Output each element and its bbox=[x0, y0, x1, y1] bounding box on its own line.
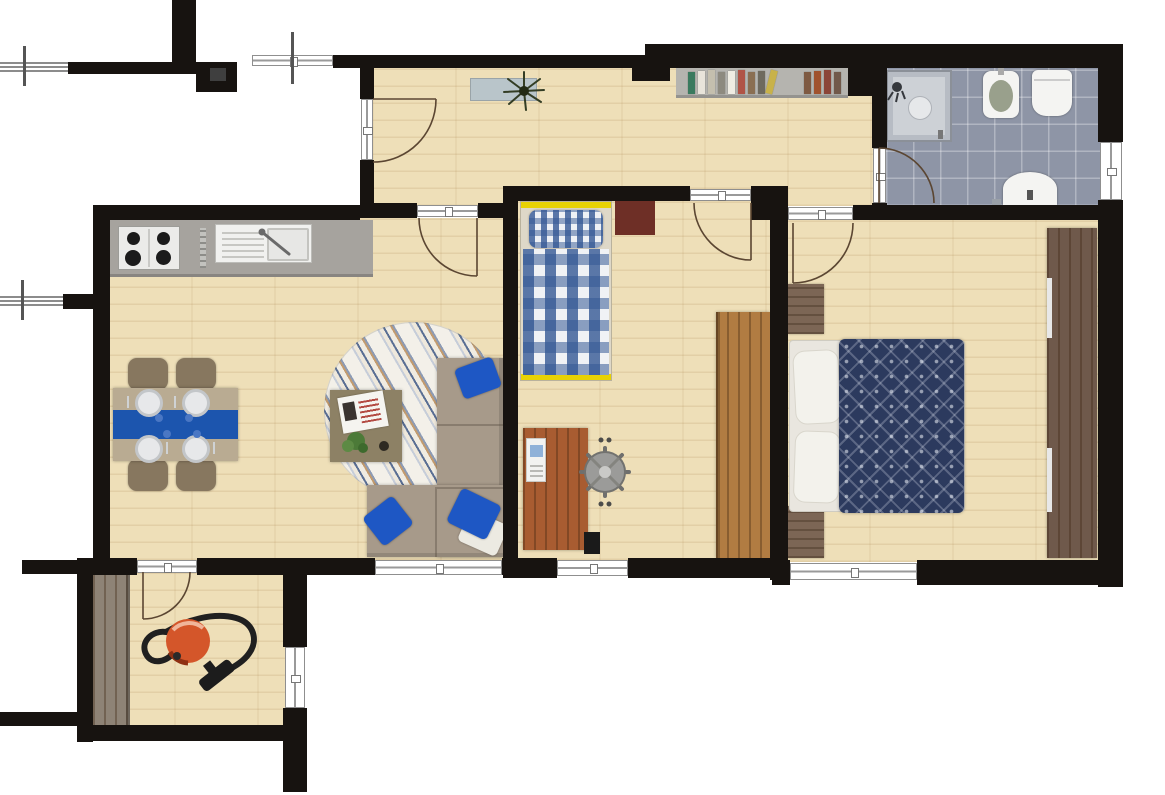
wall-stub-top bbox=[172, 0, 196, 66]
wall-entry-bottom bbox=[77, 725, 307, 741]
master-wardrobe bbox=[1047, 228, 1097, 558]
wall-right-upper bbox=[1098, 62, 1123, 142]
wall-master-bottom-b bbox=[917, 560, 1098, 585]
bathroom-door-threshold bbox=[873, 148, 886, 203]
dining-chair bbox=[176, 358, 216, 390]
notebook-lines bbox=[530, 463, 543, 477]
wall-kid-master bbox=[770, 203, 788, 580]
speaker-box bbox=[584, 532, 600, 554]
burner bbox=[125, 250, 141, 266]
kitchen-sink bbox=[215, 224, 312, 263]
shower-handle bbox=[938, 130, 943, 139]
entry-side-door bbox=[285, 647, 305, 708]
living-window bbox=[375, 560, 502, 575]
cooktop-divider bbox=[148, 229, 150, 267]
wall-hall-bottom-a bbox=[360, 203, 417, 218]
kid-door-threshold bbox=[690, 189, 751, 201]
book bbox=[824, 70, 831, 94]
wall-kid-bottom-a bbox=[518, 558, 557, 578]
kids-wardrobe bbox=[716, 312, 770, 558]
wall-living-left bbox=[93, 205, 110, 560]
wall-stub-left-mid bbox=[63, 294, 96, 309]
notebook bbox=[526, 438, 546, 482]
drainboard bbox=[222, 232, 264, 258]
dining-chair bbox=[128, 358, 168, 390]
cooktop bbox=[118, 226, 180, 270]
wall-right-lower bbox=[1098, 200, 1123, 587]
basin-tap bbox=[1027, 190, 1033, 200]
bedside-mat bbox=[615, 201, 655, 235]
master-window bbox=[790, 563, 917, 580]
burner bbox=[127, 232, 140, 245]
washbasin bbox=[1003, 172, 1057, 206]
place-setting bbox=[135, 435, 163, 463]
book bbox=[765, 70, 778, 95]
entrance-door-threshold bbox=[361, 99, 373, 160]
wall-living-kid bbox=[503, 186, 518, 578]
burner bbox=[156, 250, 171, 265]
kid-window bbox=[557, 560, 628, 576]
neighbor-wall-line bbox=[0, 62, 68, 72]
bidet-basin bbox=[989, 80, 1013, 112]
book bbox=[718, 72, 725, 94]
wall-entry-left bbox=[77, 558, 93, 742]
wall-kid-top bbox=[518, 186, 690, 201]
book bbox=[688, 72, 695, 94]
single-bed bbox=[520, 201, 612, 381]
bed-headboard bbox=[521, 202, 611, 208]
magazine-text bbox=[358, 396, 382, 423]
book bbox=[698, 71, 705, 94]
patterned-duvet bbox=[839, 339, 964, 513]
sink-basin bbox=[267, 228, 309, 261]
book-row bbox=[688, 66, 780, 98]
book bbox=[834, 72, 841, 94]
table-runner bbox=[113, 410, 238, 439]
book bbox=[758, 71, 765, 94]
wall-bath-left-upper bbox=[872, 68, 887, 148]
wall-living-top bbox=[93, 205, 360, 220]
neighbor-wall-line bbox=[0, 296, 63, 306]
master-door-threshold bbox=[788, 207, 853, 220]
bed-pillow bbox=[792, 349, 842, 425]
book bbox=[814, 71, 821, 94]
place-setting bbox=[182, 389, 210, 417]
book bbox=[738, 70, 745, 94]
living-door-threshold bbox=[417, 205, 478, 217]
double-bed bbox=[789, 340, 965, 512]
plaid-duvet bbox=[523, 249, 609, 375]
book bbox=[804, 72, 811, 94]
wall-ext-bottom-left bbox=[0, 712, 77, 726]
floor-plan bbox=[0, 0, 1165, 795]
dining-chair bbox=[128, 459, 168, 491]
utensil-rail bbox=[200, 228, 206, 268]
wall-top-right bbox=[645, 44, 1123, 68]
glass bbox=[193, 430, 201, 438]
wall-entry-right-lower bbox=[283, 708, 307, 792]
glass bbox=[163, 430, 171, 438]
wall-kid-bottom-b bbox=[628, 558, 772, 578]
nightstand bbox=[788, 506, 824, 558]
wall-entry-right-upper bbox=[283, 558, 307, 647]
sofa-seam bbox=[437, 487, 503, 489]
bidet-tap bbox=[998, 68, 1004, 75]
wall-tick bbox=[21, 280, 24, 320]
book-row bbox=[804, 66, 846, 98]
nightstand bbox=[788, 284, 824, 334]
bed-pillow bbox=[529, 210, 603, 248]
place-setting bbox=[182, 435, 210, 463]
book bbox=[728, 71, 735, 94]
wall-notch-hall bbox=[632, 68, 670, 81]
coat-closet bbox=[93, 573, 130, 725]
wall-notch bbox=[210, 68, 226, 81]
wardrobe-handle bbox=[1047, 448, 1052, 512]
bidet bbox=[983, 71, 1019, 118]
bed-pillow bbox=[793, 430, 841, 504]
wall-tick bbox=[23, 46, 26, 86]
shower bbox=[886, 70, 952, 142]
wall-living-bottom-c bbox=[502, 558, 518, 575]
magazine-photo bbox=[342, 401, 357, 421]
glass bbox=[155, 414, 163, 422]
wall-hall-left-upper bbox=[360, 68, 374, 99]
glass bbox=[185, 414, 193, 422]
wall-top-mid bbox=[333, 55, 645, 68]
wall-top-left bbox=[68, 62, 197, 74]
entry-door-threshold bbox=[137, 560, 197, 573]
toilet-tank-line bbox=[1034, 79, 1070, 81]
burner bbox=[157, 232, 170, 245]
shower-drain bbox=[908, 96, 932, 120]
sofa-seam bbox=[437, 424, 503, 426]
bookshelf bbox=[676, 66, 848, 98]
wall-master-top bbox=[853, 205, 1103, 220]
wall-master-bottom-a bbox=[772, 560, 790, 585]
book bbox=[748, 72, 755, 94]
dining-table bbox=[113, 388, 238, 461]
wall-tick bbox=[291, 32, 294, 84]
sofa-seam bbox=[435, 487, 437, 557]
place-setting bbox=[135, 389, 163, 417]
notebook-label bbox=[530, 445, 543, 457]
desk bbox=[523, 428, 588, 550]
dining-chair bbox=[176, 459, 216, 491]
console-table bbox=[470, 78, 537, 101]
toilet bbox=[1032, 70, 1072, 116]
wardrobe-handle bbox=[1047, 278, 1052, 338]
bathroom-window bbox=[1100, 142, 1122, 200]
wall-living-bottom-a bbox=[93, 558, 137, 575]
book bbox=[708, 70, 715, 94]
